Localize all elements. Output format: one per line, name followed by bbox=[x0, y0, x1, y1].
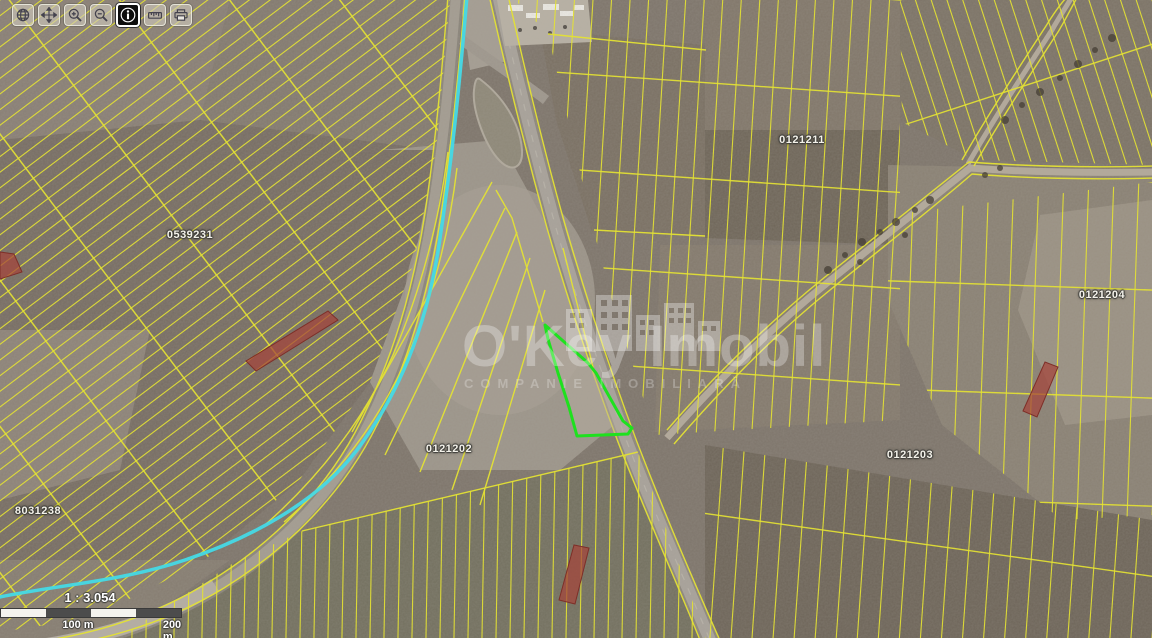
magnifier-plus-icon bbox=[67, 7, 83, 23]
pan-arrows-icon bbox=[41, 7, 57, 23]
parcel-label: 8031238 bbox=[3, 505, 73, 517]
scale-segment bbox=[46, 609, 91, 617]
parcel-label: 0121203 bbox=[875, 449, 945, 461]
scale-100m-label: 100 m bbox=[62, 619, 93, 631]
scale-bar: 1 : 3.054 100 m 200 m bbox=[0, 590, 190, 632]
info-icon bbox=[120, 7, 136, 23]
scale-200m-label: 200 m bbox=[163, 619, 181, 638]
zoom-extent-button[interactable] bbox=[12, 4, 34, 26]
parcel-label: 0121211 bbox=[767, 134, 837, 146]
parcel-label: 0121204 bbox=[1067, 289, 1137, 301]
parcel-label: 0539231 bbox=[155, 229, 225, 241]
print-icon bbox=[173, 7, 189, 23]
measure-icon bbox=[147, 7, 163, 23]
globe-icon bbox=[15, 7, 31, 23]
zoom-out-button[interactable] bbox=[90, 4, 112, 26]
scale-segment bbox=[1, 609, 46, 617]
scale-marks: 100 m 200 m bbox=[0, 618, 190, 632]
pan-button[interactable] bbox=[38, 4, 60, 26]
zoom-in-button[interactable] bbox=[64, 4, 86, 26]
map-canvas[interactable] bbox=[0, 0, 1152, 638]
scale-bar-segments bbox=[0, 608, 182, 618]
print-button[interactable] bbox=[170, 4, 192, 26]
map-viewer: 0121211 0121204 0121202 0121203 8031238 … bbox=[0, 0, 1152, 638]
map-toolbar bbox=[12, 3, 192, 27]
parcel-label: 0121202 bbox=[414, 443, 484, 455]
identify-button[interactable] bbox=[116, 3, 140, 27]
scale-ratio-label: 1 : 3.054 bbox=[0, 590, 180, 605]
magnifier-minus-icon bbox=[93, 7, 109, 23]
scale-segment bbox=[91, 609, 136, 617]
scale-segment bbox=[136, 609, 181, 617]
measure-button[interactable] bbox=[144, 4, 166, 26]
